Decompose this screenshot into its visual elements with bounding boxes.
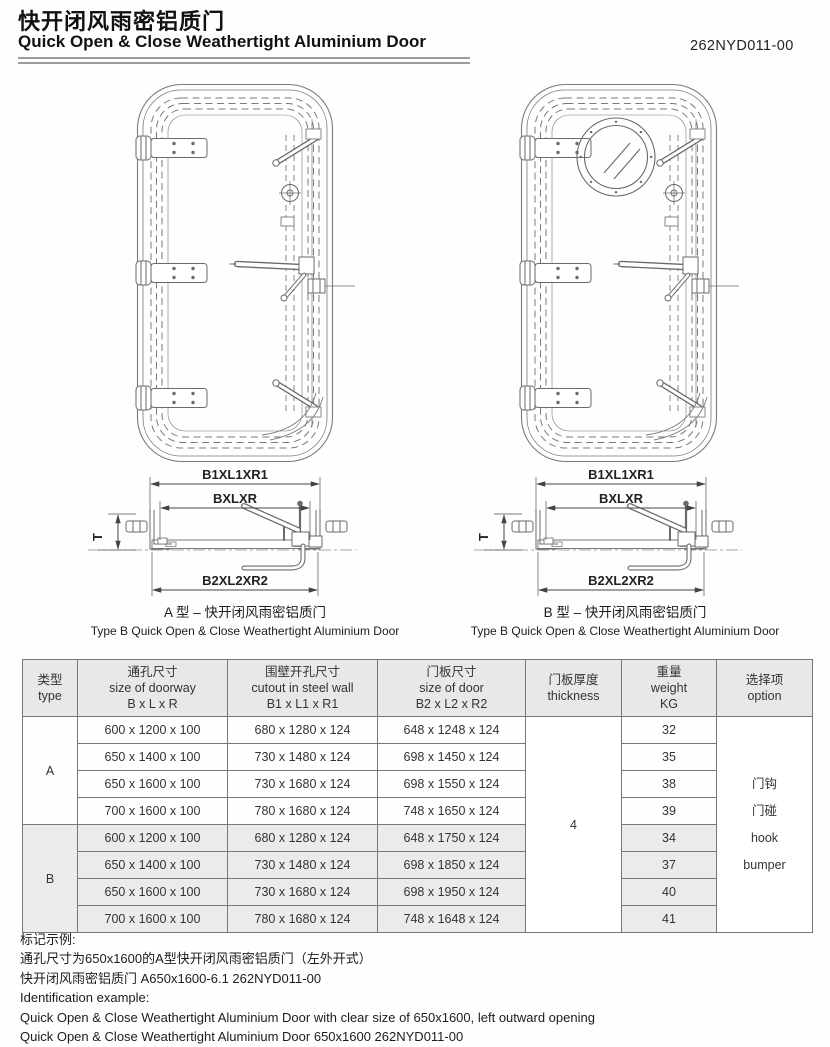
thickness-cell: 4 [526,717,622,933]
type-cell: B [23,825,78,933]
table-row: 650 x 1400 x 100 730 x 1480 x 124 698 x … [23,852,813,879]
type-a-caption-en: Type B Quick Open & Close Weathertight A… [75,623,415,640]
door-size-cell: 698 x 1850 x 124 [378,852,526,879]
weight-cell: 34 [622,825,717,852]
weight-cell: 35 [622,744,717,771]
doorway-cell: 600 x 1200 x 100 [78,717,228,744]
col-header-type: 类型 type [23,660,78,717]
note-en-line2: Quick Open & Close Weathertight Aluminiu… [20,1027,800,1046]
note-en-label: Identification example: [20,988,800,1007]
doorway-cell: 600 x 1200 x 100 [78,825,228,852]
weight-cell: 40 [622,879,717,906]
type-b-section-drawing [474,456,744,606]
note-en-line1: Quick Open & Close Weathertight Aluminiu… [20,1008,800,1027]
door-size-cell: 748 x 1648 x 124 [378,906,526,933]
type-a-caption-zh: A 型 – 快开闭风雨密铝质门 [75,603,415,623]
col-header-option: 选择项 option [717,660,813,717]
cutout-cell: 730 x 1680 x 124 [228,879,378,906]
note-zh-line1: 通孔尺寸为650x1600的A型快开闭风雨密铝质门（左外开式） [20,949,800,968]
identification-notes: 标记示例: 通孔尺寸为650x1600的A型快开闭风雨密铝质门（左外开式） 快开… [20,930,800,1046]
table-row: A 600 x 1200 x 100 680 x 1280 x 124 648 … [23,717,813,744]
cutout-cell: 780 x 1680 x 124 [228,906,378,933]
cutout-cell: 730 x 1680 x 124 [228,771,378,798]
door-size-cell: 698 x 1950 x 124 [378,879,526,906]
weight-cell: 38 [622,771,717,798]
spec-table: 类型 type 通孔尺寸 size of doorway B x L x R 围… [22,659,813,933]
doorway-cell: 650 x 1600 x 100 [78,879,228,906]
col-header-weight: 重量 weight KG [622,660,717,717]
type-cell: A [23,717,78,825]
door-size-cell: 698 x 1450 x 124 [378,744,526,771]
type-b-caption-zh: B 型 – 快开闭风雨密铝质门 [455,603,795,623]
cutout-cell: 780 x 1680 x 124 [228,798,378,825]
header-row: 类型 type 通孔尺寸 size of doorway B x L x R 围… [23,660,813,717]
table-row: 700 x 1600 x 100 780 x 1680 x 124 748 x … [23,798,813,825]
weight-cell: 32 [622,717,717,744]
title-divider [18,57,470,64]
type-a-caption: A 型 – 快开闭风雨密铝质门 Type B Quick Open & Clos… [75,603,415,640]
type-a-door-drawing [136,83,356,465]
cutout-cell: 730 x 1480 x 124 [228,744,378,771]
weight-cell: 39 [622,798,717,825]
doorway-cell: 700 x 1600 x 100 [78,798,228,825]
note-zh-label: 标记示例: [20,930,800,949]
note-zh-line2: 快开闭风雨密铝质门 A650x1600-6.1 262NYD011-00 [20,969,800,988]
col-header-doorway: 通孔尺寸 size of doorway B x L x R [78,660,228,717]
door-size-cell: 648 x 1750 x 124 [378,825,526,852]
table-row: B 600 x 1200 x 100 680 x 1280 x 124 648 … [23,825,813,852]
option-cell: 门钩 门碰 hook bumper [717,717,813,933]
col-header-cutout: 围壁开孔尺寸 cutout in steel wall B1 x L1 x R1 [228,660,378,717]
col-header-thickness: 门板厚度 thickness [526,660,622,717]
page-title-en: Quick Open & Close Weathertight Aluminiu… [18,32,426,52]
door-size-cell: 748 x 1650 x 124 [378,798,526,825]
table-row: 650 x 1600 x 100 730 x 1680 x 124 698 x … [23,771,813,798]
type-a-section-drawing [88,456,358,606]
doorway-cell: 650 x 1600 x 100 [78,771,228,798]
cutout-cell: 730 x 1480 x 124 [228,852,378,879]
doorway-cell: 650 x 1400 x 100 [78,852,228,879]
document-number: 262NYD011-00 [690,38,794,54]
type-b-caption: B 型 – 快开闭风雨密铝质门 Type B Quick Open & Clos… [455,603,795,640]
table-row: 650 x 1600 x 100 730 x 1680 x 124 698 x … [23,879,813,906]
cutout-cell: 680 x 1280 x 124 [228,717,378,744]
door-size-cell: 648 x 1248 x 124 [378,717,526,744]
col-header-door-size: 门板尺寸 size of door B2 x L2 x R2 [378,660,526,717]
cutout-cell: 680 x 1280 x 124 [228,825,378,852]
table-row: 650 x 1400 x 100 730 x 1480 x 124 698 x … [23,744,813,771]
door-size-cell: 698 x 1550 x 124 [378,771,526,798]
doorway-cell: 650 x 1400 x 100 [78,744,228,771]
weight-cell: 37 [622,852,717,879]
type-b-caption-en: Type B Quick Open & Close Weathertight A… [455,623,795,640]
doorway-cell: 700 x 1600 x 100 [78,906,228,933]
type-b-door-drawing [520,83,740,465]
weight-cell: 41 [622,906,717,933]
drawing-sheet: 快开闭风雨密铝质门 Quick Open & Close Weathertigh… [0,0,830,1047]
table-row: 700 x 1600 x 100 780 x 1680 x 124 748 x … [23,906,813,933]
